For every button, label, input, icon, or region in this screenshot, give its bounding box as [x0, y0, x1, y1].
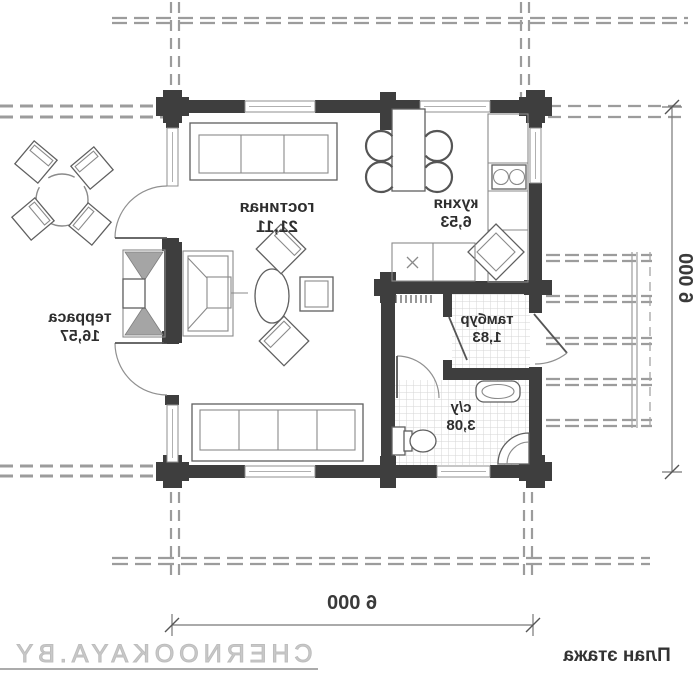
- log-cross-bottom-right: [519, 462, 552, 481]
- room-area: 21,11: [217, 217, 337, 237]
- window-left-upper: [167, 128, 178, 186]
- entrance-door-arc: [535, 353, 567, 364]
- terrace-door-arc-upper: [115, 186, 167, 238]
- terrace-chair: [69, 203, 111, 245]
- dimension-text-right: 6 000: [674, 238, 696, 318]
- room-name: кухня: [406, 195, 506, 214]
- fireplace-living-outer: [183, 251, 233, 336]
- log-cross-bottom-left: [156, 462, 189, 481]
- room-name: гостиная: [217, 197, 337, 217]
- room-name: терраса: [30, 309, 130, 328]
- armchair-right: [300, 277, 333, 311]
- kitchen-counter-bottom: [392, 243, 475, 281]
- roof-overhang-dashes: [0, 2, 688, 580]
- fireplace-terrace-wedge-top: [125, 252, 163, 281]
- watermark-text: CHERNOOKAYA.BY: [2, 640, 322, 669]
- window-bottom-living: [245, 466, 315, 477]
- sofa-3-seat: [190, 123, 337, 180]
- plan-title: План этажа: [538, 645, 696, 667]
- living-room-furniture: [190, 123, 363, 461]
- room-name: с/у: [411, 399, 511, 417]
- window-top-living: [245, 101, 315, 112]
- room-area: 3,08: [411, 417, 511, 435]
- dining-table: [392, 109, 425, 191]
- armchair-bottom: [259, 316, 308, 365]
- roof-dash-top-right-vertical: [521, 2, 529, 98]
- room-label-wc: с/у 3,08: [411, 399, 511, 434]
- roof-dash-bottom: [112, 558, 650, 564]
- floor-plan-canvas: гостиная 21,11 кухня 6,53 терраса 16,57 …: [0, 0, 700, 686]
- wall-bottom-segment: [315, 465, 437, 478]
- window-bottom-bathroom: [437, 466, 490, 477]
- window-right-kitchen: [530, 128, 541, 183]
- fireplace-terrace-firebox: [123, 279, 145, 308]
- fireplace-firebox-lines: [188, 258, 207, 329]
- porch-edge-line: [632, 252, 637, 428]
- fireplace-firebox: [207, 277, 231, 308]
- room-label-tambour: тамбур 1,83: [437, 311, 537, 346]
- dimension-text-bottom: 6 000: [302, 592, 402, 615]
- fireplace-living-inner: [188, 256, 228, 331]
- wall-kitchen-bottom: [381, 281, 542, 294]
- watermark-underline: [0, 668, 318, 670]
- porch-planks: [546, 255, 652, 426]
- roof-dash-left-upper: [0, 106, 163, 117]
- room-area: 1,83: [437, 329, 537, 347]
- log-cross-top-left: [156, 97, 189, 116]
- stove: [492, 165, 526, 189]
- window-left-lower: [167, 405, 178, 462]
- terrace-furniture: [12, 141, 113, 245]
- room-area: 6,53: [406, 214, 506, 233]
- dimension-bottom: [165, 614, 540, 636]
- fireplace-terrace-wedge-bottom: [125, 306, 163, 335]
- terrace-chair: [71, 147, 113, 189]
- coffee-table: [255, 269, 289, 323]
- roof-dash-top-left-vertical: [171, 2, 179, 98]
- room-label-kitchen: кухня 6,53: [406, 195, 506, 233]
- room-label-living: гостиная 21,11: [217, 197, 337, 237]
- radiator: [396, 295, 431, 303]
- window-top-kitchen: [420, 101, 490, 112]
- log-cross-top-right: [519, 97, 552, 116]
- sofa-4-seat: [192, 404, 363, 461]
- roof-dash-bottom-left-vertical: [171, 492, 179, 580]
- fireplace: [123, 242, 248, 343]
- wall-tambour-left-lower: [443, 360, 452, 368]
- roof-dash-top: [112, 18, 688, 23]
- fireplace-chimney: [164, 242, 182, 343]
- log-cross-bottom-middle: [380, 456, 396, 488]
- wall-left-segment: [165, 395, 179, 405]
- room-label-terrace: терраса 16,57: [30, 309, 130, 347]
- roof-dash-left-lower: [0, 466, 156, 476]
- terrace-door-arc-lower: [115, 343, 167, 395]
- room-name: тамбур: [437, 311, 537, 329]
- washer-x-mark: [407, 257, 418, 268]
- roof-dash-right-upper: [548, 106, 686, 117]
- room-area: 16,57: [30, 328, 130, 347]
- entrance-door-leaf: [534, 314, 567, 353]
- porch-deck: [546, 252, 652, 428]
- wall-tambour-bottom: [443, 368, 530, 380]
- terrace-chair: [12, 198, 54, 240]
